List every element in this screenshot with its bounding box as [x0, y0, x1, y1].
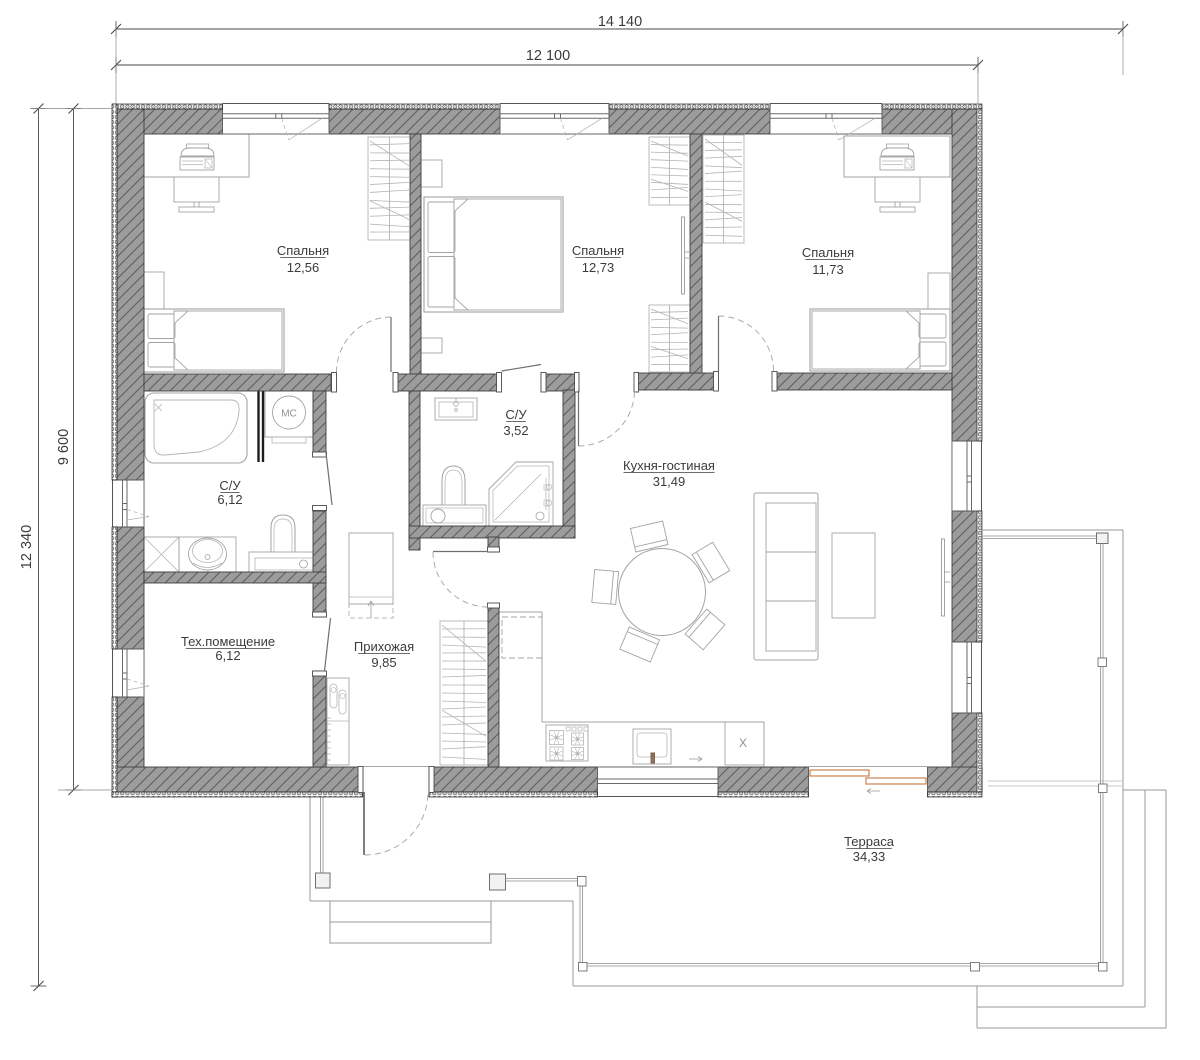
- svg-text:Тех.помещение: Тех.помещение: [181, 634, 275, 649]
- svg-text:МС: МС: [281, 409, 297, 420]
- svg-text:14 140: 14 140: [598, 14, 642, 30]
- svg-text:12 340: 12 340: [19, 525, 35, 569]
- svg-text:9,85: 9,85: [371, 655, 396, 670]
- svg-text:Спальня: Спальня: [802, 245, 854, 260]
- svg-text:9 600: 9 600: [56, 429, 72, 465]
- svg-text:31,49: 31,49: [653, 474, 686, 489]
- svg-text:Спальня: Спальня: [277, 243, 329, 258]
- svg-text:С/У: С/У: [219, 478, 241, 493]
- svg-text:Терраса: Терраса: [844, 834, 895, 849]
- svg-text:С/У: С/У: [505, 407, 527, 422]
- svg-text:12,73: 12,73: [582, 260, 615, 275]
- svg-text:X: X: [739, 736, 747, 750]
- svg-text:12 100: 12 100: [526, 48, 570, 64]
- svg-text:34,33: 34,33: [853, 849, 886, 864]
- svg-text:Кухня-гостиная: Кухня-гостиная: [623, 458, 715, 473]
- svg-text:6,12: 6,12: [217, 492, 242, 507]
- svg-text:3,52: 3,52: [503, 423, 528, 438]
- svg-text:11,73: 11,73: [812, 262, 844, 277]
- svg-text:6,12: 6,12: [215, 648, 240, 663]
- svg-text:12,56: 12,56: [287, 260, 320, 275]
- svg-text:Прихожая: Прихожая: [354, 639, 414, 654]
- svg-text:Спальня: Спальня: [572, 243, 624, 258]
